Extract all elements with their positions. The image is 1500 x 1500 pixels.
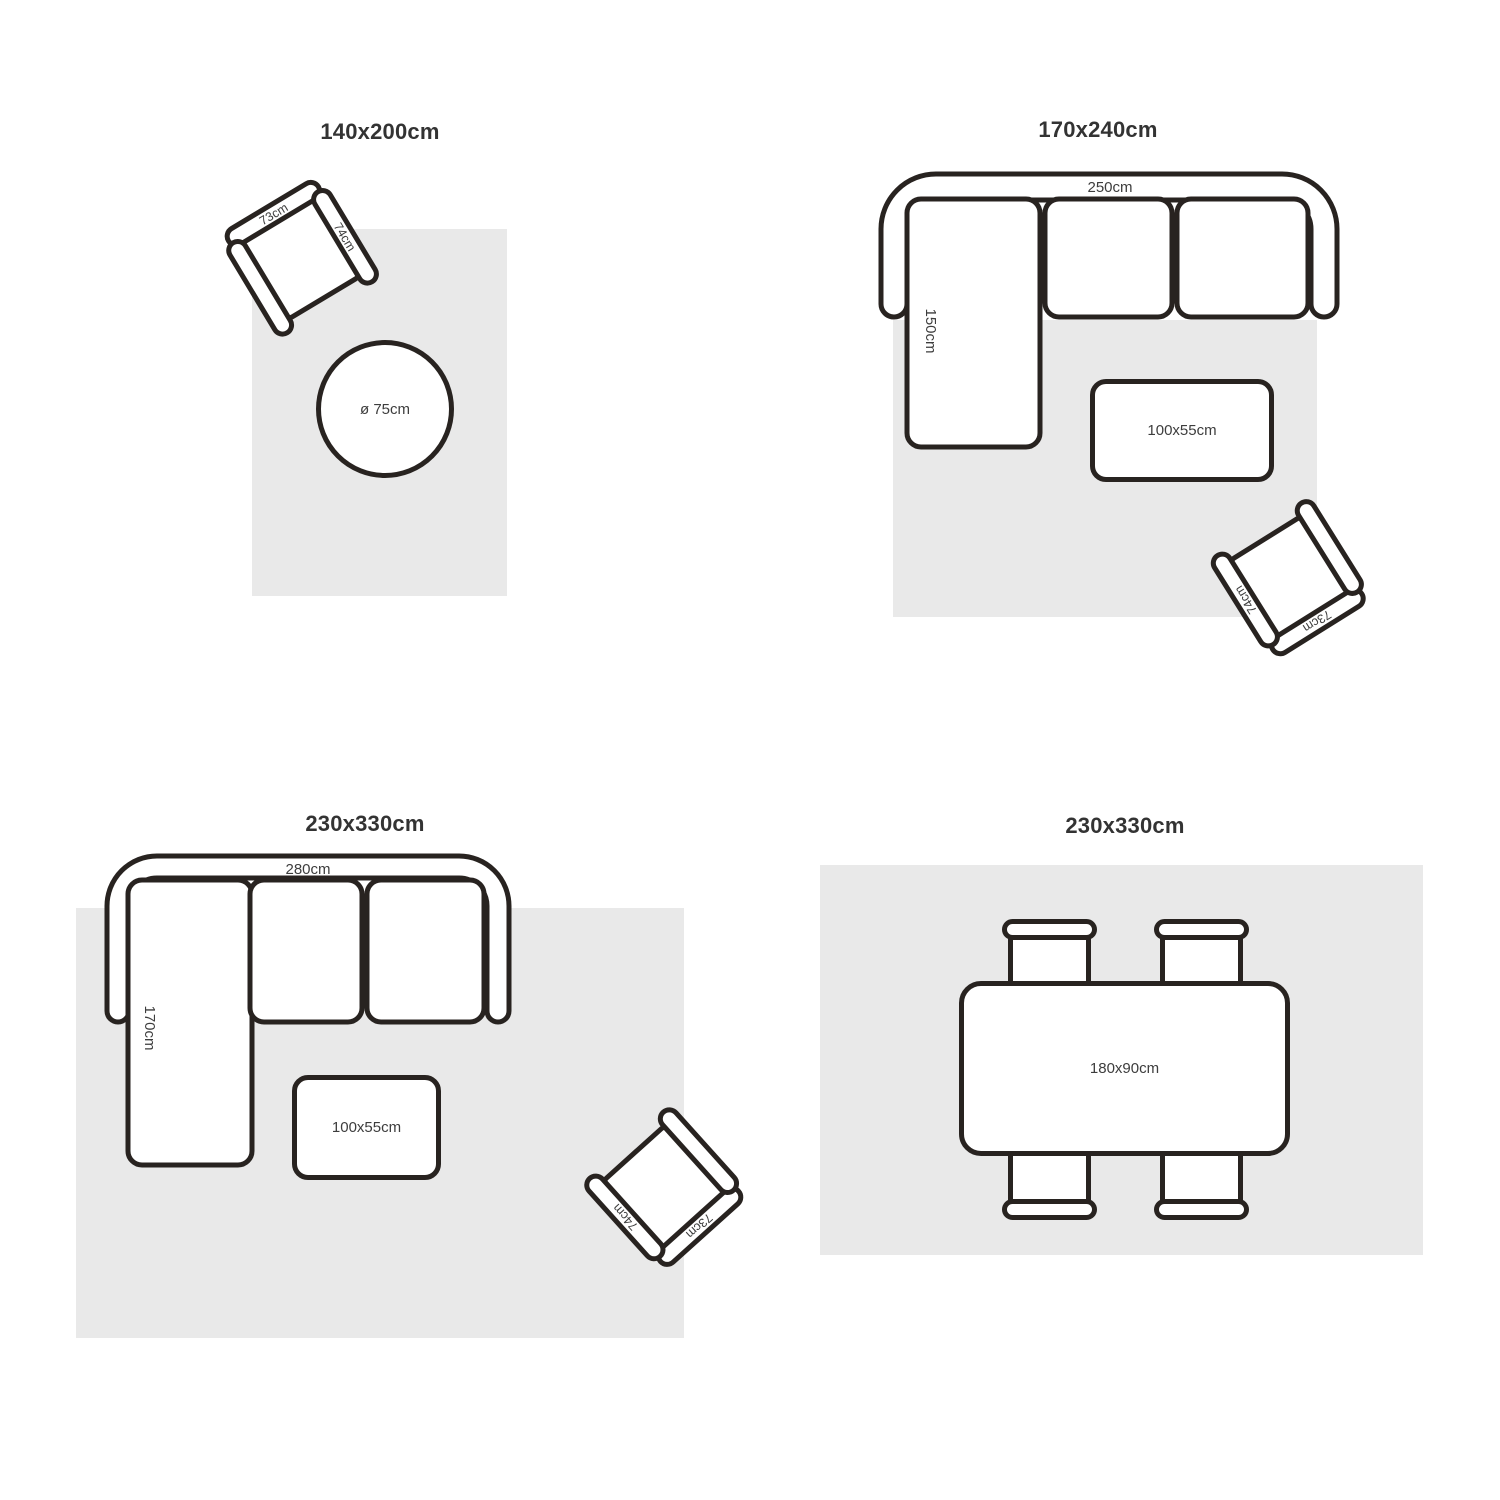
coffee-table-q2: 100x55cm <box>1090 379 1274 482</box>
sofa-cushion <box>367 880 484 1022</box>
sofa-chaise-label: 150cm <box>922 308 939 353</box>
sofa-cushion <box>1045 199 1172 317</box>
dining-chair-backrest <box>1002 1199 1097 1220</box>
round-table-label: ø 75cm <box>360 401 410 418</box>
sofa-width-label: 280cm <box>285 861 330 878</box>
dining-chair-backrest <box>1154 1199 1249 1220</box>
sofa-chaise-label: 170cm <box>141 1005 158 1050</box>
dining-table-q4: 180x90cm <box>959 981 1290 1156</box>
coffee-table-label: 100x55cm <box>1147 422 1216 439</box>
dining-chair-backrest <box>1154 919 1249 940</box>
dining-chair-bottom-right <box>1154 1146 1249 1220</box>
rug-size-guide-diagram: 140x200cm ø 75cm 73cm 74cm 170x240cm 250… <box>0 0 1500 1500</box>
dining-table-label: 180x90cm <box>1090 1060 1159 1077</box>
coffee-table-q3: 100x55cm <box>292 1075 441 1180</box>
rug-size-title-q3: 230x330cm <box>205 811 525 837</box>
dining-chair-backrest <box>1002 919 1097 940</box>
dining-chair-bottom-left <box>1002 1146 1097 1220</box>
sofa-width-label: 250cm <box>1087 179 1132 196</box>
rug-size-title-q4: 230x330cm <box>965 813 1285 839</box>
rug-size-title-q2: 170x240cm <box>938 117 1258 143</box>
sofa-cushion <box>250 880 362 1022</box>
coffee-table-label: 100x55cm <box>332 1119 401 1136</box>
sofa-cushion <box>1177 199 1308 317</box>
round-table-q1: ø 75cm <box>316 340 454 478</box>
rug-size-title-q1: 140x200cm <box>220 119 540 145</box>
